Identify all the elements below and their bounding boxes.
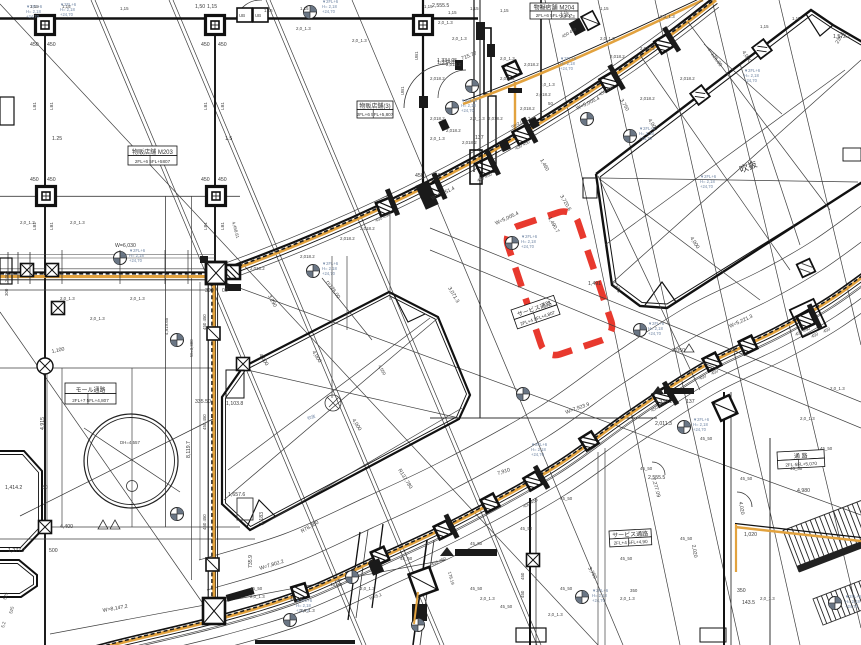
- svg-text:2,0_1.3: 2,0_1.3: [438, 20, 453, 25]
- svg-text:2,0_1.3: 2,0_1.3: [540, 82, 555, 87]
- svg-text:1,183: 1,183: [259, 512, 265, 525]
- svg-text:2,0_1.3: 2,0_1.3: [620, 596, 635, 601]
- svg-text:2,018.2: 2,018.2: [250, 266, 265, 271]
- svg-text:2,018.2: 2,018.2: [520, 106, 535, 111]
- svg-text:2FL+6 5FL+5,807: 2FL+6 5FL+5,807: [357, 112, 394, 117]
- svg-text:2,0_1.3: 2,0_1.3: [60, 296, 75, 301]
- svg-text:+24,70: +24,70: [744, 78, 758, 83]
- svg-text:2,018.2: 2,018.2: [524, 62, 539, 67]
- svg-text:450: 450: [201, 42, 210, 48]
- svg-text:2,0_1.3: 2,0_1.3: [500, 56, 515, 61]
- svg-text:45_50: 45_50: [500, 604, 513, 609]
- svg-text:45_50: 45_50: [680, 536, 693, 541]
- svg-text:4,980: 4,980: [797, 488, 810, 494]
- svg-text:2,0_1.3: 2,0_1.3: [452, 36, 467, 41]
- svg-text:45_50: 45_50: [470, 541, 483, 546]
- svg-text:300: 300: [4, 288, 9, 296]
- svg-text:2,018.2: 2,018.2: [610, 54, 625, 59]
- svg-text:350: 350: [630, 588, 638, 593]
- svg-text:45_50: 45_50: [620, 556, 633, 561]
- svg-text:2,018.2: 2,018.2: [536, 92, 551, 97]
- svg-text:1,15: 1,15: [207, 4, 217, 10]
- svg-text:+24,70: +24,70: [700, 184, 714, 189]
- svg-text:45_50: 45_50: [290, 596, 303, 601]
- svg-text:2,018.2: 2,018.2: [488, 116, 503, 121]
- svg-text:45_50: 45_50: [400, 556, 413, 561]
- svg-text:LB1: LB1: [49, 102, 54, 110]
- svg-text:450: 450: [218, 42, 227, 48]
- svg-text:450 450: 450 450: [202, 314, 207, 330]
- svg-text:2,0_1.3: 2,0_1.3: [830, 386, 845, 391]
- svg-text:300: 300: [205, 288, 214, 294]
- svg-text:8,119.7: 8,119.7: [186, 441, 192, 458]
- svg-text:2,0_1.3: 2,0_1.3: [90, 316, 105, 321]
- svg-text:2,555.5: 2,555.5: [432, 3, 449, 9]
- svg-text:450: 450: [520, 572, 525, 580]
- svg-text:2,0_1.3: 2,0_1.3: [300, 608, 315, 613]
- svg-text:500: 500: [49, 548, 58, 554]
- svg-text:45_50: 45_50: [470, 586, 483, 591]
- svg-text:45_50: 45_50: [740, 476, 753, 481]
- svg-text:1.5: 1.5: [225, 136, 232, 142]
- svg-text:450 450: 450 450: [202, 414, 207, 430]
- svg-text:2,0_1.3: 2,0_1.3: [352, 38, 367, 43]
- svg-text:45_50: 45_50: [790, 466, 803, 471]
- svg-text:2,018.2: 2,018.2: [640, 96, 655, 101]
- svg-text:1,15: 1,15: [62, 4, 71, 9]
- svg-text:450 450: 450 450: [202, 514, 207, 530]
- svg-text:+24,70: +24,70: [322, 271, 336, 276]
- svg-text:+24,70: +24,70: [592, 598, 606, 603]
- svg-text:物販店舗 M203: 物販店舗 M203: [132, 148, 173, 156]
- svg-text:1,15: 1,15: [600, 6, 609, 11]
- svg-text:335.50: 335.50: [195, 399, 211, 405]
- svg-text:1,414.2: 1,414.2: [5, 485, 22, 491]
- svg-text:UB1: UB1: [414, 51, 419, 60]
- svg-text:1,572.1: 1,572.1: [833, 34, 850, 40]
- svg-text:LB1: LB1: [220, 222, 225, 230]
- svg-text:450: 450: [201, 177, 210, 183]
- svg-text:2,0_1.3: 2,0_1.3: [70, 220, 85, 225]
- svg-text:4,400: 4,400: [60, 524, 73, 530]
- svg-text:450: 450: [47, 42, 56, 48]
- svg-text:LB1: LB1: [49, 222, 54, 230]
- svg-text:4,919.65: 4,919.65: [164, 317, 169, 335]
- svg-text:2,018.2: 2,018.2: [300, 254, 315, 259]
- svg-text:2,018.2: 2,018.2: [462, 140, 477, 145]
- svg-text:LB1: LB1: [203, 102, 208, 110]
- svg-text:2,018.2: 2,018.2: [430, 116, 445, 121]
- svg-text:+24,70: +24,70: [26, 14, 40, 19]
- svg-text:LB1: LB1: [32, 102, 37, 110]
- svg-text:45_50: 45_50: [330, 582, 343, 587]
- svg-text:450: 450: [30, 177, 39, 183]
- svg-text:00: 00: [222, 288, 228, 294]
- svg-text:1,15: 1,15: [500, 8, 509, 13]
- svg-text:2,0_1.3: 2,0_1.3: [800, 416, 815, 421]
- svg-text:450: 450: [415, 173, 424, 179]
- svg-text:W=3,380: W=3,380: [189, 339, 194, 357]
- svg-text:450: 450: [47, 177, 56, 183]
- svg-text:W=6,030: W=6,030: [115, 243, 136, 249]
- svg-text:+24,70: +24,70: [129, 258, 143, 263]
- svg-text:2,018.2: 2,018.2: [430, 76, 445, 81]
- svg-text:1,15: 1,15: [792, 16, 801, 21]
- svg-text:1,15: 1,15: [30, 4, 39, 9]
- svg-text:1,277.7: 1,277.7: [8, 548, 25, 554]
- svg-text:2,018.2: 2,018.2: [446, 62, 461, 67]
- svg-text:+24,70: +24,70: [845, 604, 859, 609]
- svg-text:2,018.2: 2,018.2: [340, 236, 355, 241]
- svg-text:50: 50: [548, 101, 553, 106]
- svg-text:2,0_1.3: 2,0_1.3: [20, 220, 35, 225]
- svg-text:+24,70: +24,70: [322, 9, 336, 14]
- svg-text:4,915: 4,915: [40, 417, 46, 430]
- svg-text:2FL+7 5FL+4,807: 2FL+7 5FL+4,807: [72, 398, 109, 403]
- svg-text:2,0_1.3: 2,0_1.3: [548, 612, 563, 617]
- svg-text:DH=4,557: DH=4,557: [120, 440, 140, 445]
- svg-text:2,011.3: 2,011.3: [655, 421, 672, 427]
- svg-text:450: 450: [218, 177, 227, 183]
- svg-text:+24,70: +24,70: [560, 66, 574, 71]
- svg-text:LB1: LB1: [203, 222, 208, 230]
- svg-text:45_50: 45_50: [700, 436, 713, 441]
- svg-text:2,0_1.3: 2,0_1.3: [296, 26, 311, 31]
- svg-text:UB: UB: [239, 13, 245, 18]
- svg-text:1,50: 1,50: [195, 4, 205, 10]
- svg-text:2,0_1.3: 2,0_1.3: [430, 136, 445, 141]
- svg-text:1,15: 1,15: [560, 10, 569, 15]
- svg-text:137: 137: [686, 399, 695, 405]
- svg-text:1,15: 1,15: [448, 10, 457, 15]
- svg-text:+24,70: +24,70: [461, 108, 475, 113]
- svg-text:1,15: 1,15: [264, 8, 273, 13]
- svg-text:+24,70: +24,70: [693, 427, 707, 432]
- svg-text:2,018.2: 2,018.2: [446, 128, 461, 133]
- svg-text:1,020: 1,020: [744, 532, 757, 538]
- svg-text:1,15: 1,15: [760, 24, 769, 29]
- svg-text:+24,70: +24,70: [531, 452, 545, 457]
- svg-text:2,018.2: 2,018.2: [680, 76, 695, 81]
- svg-text:2,018.2: 2,018.2: [360, 226, 375, 231]
- svg-text:1,657.6: 1,657.6: [228, 492, 245, 498]
- svg-text:物販店舗(3): 物販店舗(3): [359, 102, 390, 110]
- svg-text:1,15: 1,15: [470, 6, 479, 11]
- svg-text:1,103.8: 1,103.8: [226, 401, 243, 407]
- svg-text:45_50: 45_50: [520, 526, 533, 531]
- svg-text:45_50: 45_50: [560, 496, 573, 501]
- svg-text:2,0_1.3: 2,0_1.3: [660, 14, 675, 19]
- svg-text:UB1: UB1: [400, 86, 405, 95]
- svg-text:450: 450: [520, 590, 525, 598]
- svg-text:+24,70: +24,70: [60, 12, 74, 17]
- svg-text:1,15: 1,15: [120, 6, 129, 11]
- svg-text:モール通路: モール通路: [75, 386, 105, 394]
- svg-text:+24,70: +24,70: [648, 331, 662, 336]
- svg-text:735.9: 735.9: [248, 555, 254, 568]
- svg-text:+24,70: +24,70: [639, 136, 653, 141]
- svg-text:2,0_1.3: 2,0_1.3: [760, 596, 775, 601]
- svg-text:LB1: LB1: [220, 102, 225, 110]
- svg-text:UB: UB: [255, 13, 261, 18]
- svg-text:2,018.2: 2,018.2: [640, 46, 655, 51]
- svg-text:+24,70: +24,70: [521, 244, 535, 249]
- svg-text:143.5: 143.5: [742, 600, 755, 606]
- svg-text:1.25: 1.25: [52, 136, 62, 142]
- svg-text:2FL+6 5FL+5807: 2FL+6 5FL+5807: [135, 159, 171, 164]
- svg-text:450: 450: [30, 42, 39, 48]
- svg-text:2,0_1.3: 2,0_1.3: [130, 296, 145, 301]
- svg-text:45_50: 45_50: [560, 586, 573, 591]
- svg-text:1,15: 1,15: [424, 4, 433, 9]
- svg-text:2,018.2: 2,018.2: [500, 76, 515, 81]
- svg-text:2,0_1.3: 2,0_1.3: [600, 36, 615, 41]
- svg-text:2,0_1.3: 2,0_1.3: [250, 594, 265, 599]
- svg-text:45_50: 45_50: [820, 446, 833, 451]
- svg-text:1,491: 1,491: [588, 281, 601, 287]
- svg-text:45_50: 45_50: [640, 466, 653, 471]
- svg-text:2,0_1.3: 2,0_1.3: [360, 586, 375, 591]
- svg-text:350: 350: [737, 588, 746, 594]
- svg-text:45_50: 45_50: [250, 586, 263, 591]
- svg-text:2,0_1.3: 2,0_1.3: [480, 596, 495, 601]
- svg-text:2,0_1.3: 2,0_1.3: [470, 116, 485, 121]
- svg-text:1,15: 1,15: [540, 4, 549, 9]
- svg-text:80: 80: [42, 485, 48, 491]
- svg-text:1,15: 1,15: [300, 6, 309, 11]
